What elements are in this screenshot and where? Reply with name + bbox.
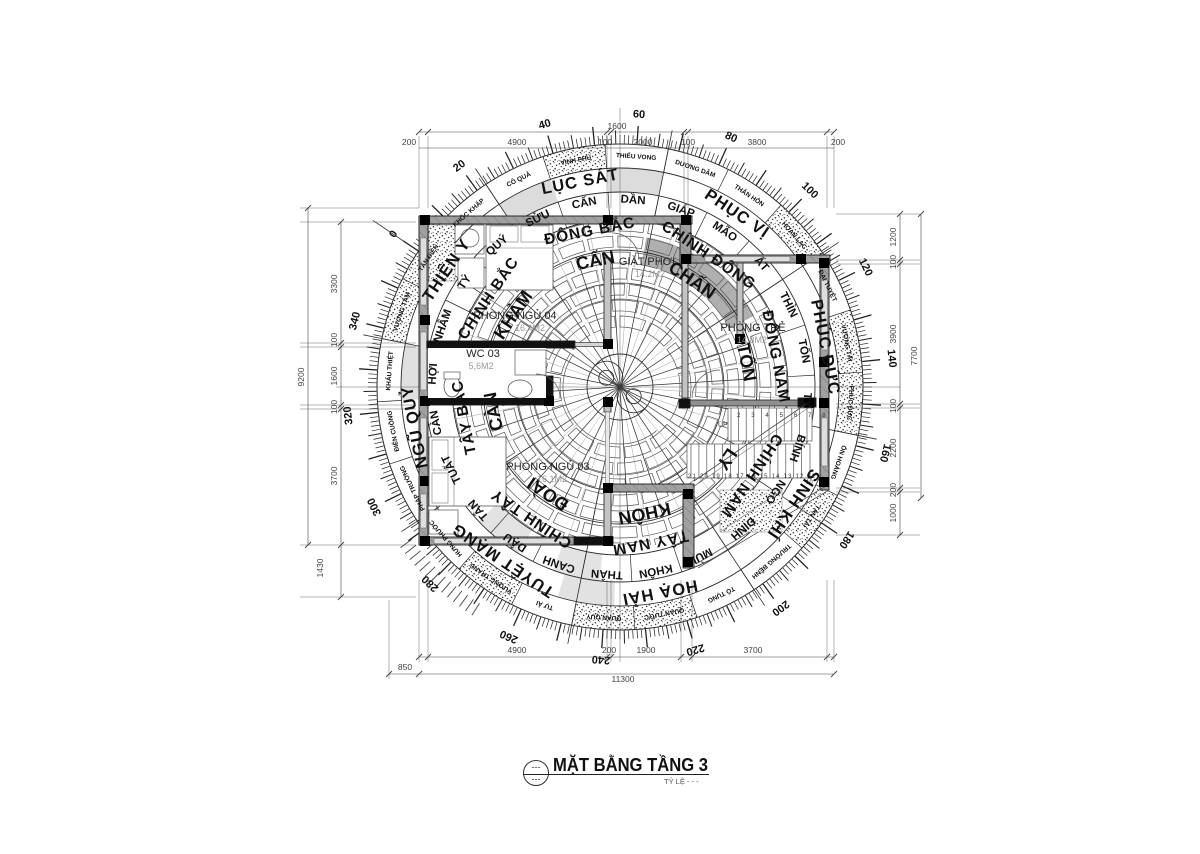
svg-text:2200: 2200	[888, 438, 898, 457]
svg-text:PHÒNG NGỦ 03: PHÒNG NGỦ 03	[506, 460, 589, 473]
svg-text:1600: 1600	[608, 121, 627, 131]
svg-text:3800: 3800	[748, 137, 767, 147]
svg-text:16.4M2: 16.4M2	[515, 323, 545, 333]
svg-text:3700: 3700	[744, 645, 763, 655]
svg-text:140: 140	[885, 349, 899, 369]
svg-text:GIẶT PHƠI: GIẶT PHƠI	[619, 255, 675, 268]
svg-text:11300: 11300	[611, 674, 634, 684]
svg-text:MẶT BẰNG TẦNG 3: MẶT BẰNG TẦNG 3	[553, 754, 708, 775]
svg-text:THÂN: THÂN	[591, 566, 624, 581]
svg-text:100: 100	[329, 400, 339, 414]
svg-text:TỴ: TỴ	[800, 392, 813, 408]
svg-text:3700: 3700	[329, 466, 339, 485]
svg-text:100: 100	[598, 137, 612, 147]
svg-text:3300: 3300	[329, 274, 339, 293]
svg-text:3900: 3900	[888, 324, 898, 343]
svg-text:1430: 1430	[315, 558, 325, 577]
svg-text:4900: 4900	[508, 645, 527, 655]
svg-text:100: 100	[681, 137, 695, 147]
svg-text:100: 100	[888, 255, 898, 269]
svg-text:TỶ LỆ - - -: TỶ LỆ - - -	[664, 777, 699, 786]
svg-text:2 3 4 5 6 7 8: 2 3 4 5 6 7 8	[737, 413, 830, 419]
svg-text:320: 320	[342, 406, 356, 426]
svg-text:5,6M2: 5,6M2	[468, 361, 493, 371]
svg-text:850: 850	[398, 662, 412, 672]
svg-text:1900: 1900	[637, 645, 656, 655]
svg-text:200: 200	[831, 137, 845, 147]
svg-text:---: ---	[532, 774, 541, 784]
svg-text:HỢI: HỢI	[427, 363, 440, 385]
svg-text:100: 100	[888, 399, 898, 413]
svg-text:1200: 1200	[888, 227, 898, 246]
svg-text:9200: 9200	[296, 367, 306, 386]
svg-text:200: 200	[402, 137, 416, 147]
svg-text:1000: 1000	[888, 503, 898, 522]
svg-text:---: ---	[532, 762, 541, 772]
svg-text:100: 100	[329, 333, 339, 347]
svg-text:7700: 7700	[909, 346, 919, 365]
svg-text:2000: 2000	[634, 137, 653, 147]
svg-text:1600: 1600	[329, 366, 339, 385]
svg-text:14.2M2: 14.2M2	[635, 269, 665, 279]
svg-text:UP: UP	[718, 422, 728, 429]
svg-text:60: 60	[632, 108, 645, 121]
svg-text:200: 200	[888, 483, 898, 497]
svg-text:WC 03: WC 03	[466, 348, 500, 360]
svg-text:DẦN: DẦN	[620, 193, 646, 208]
svg-text:200: 200	[602, 645, 616, 655]
svg-text:4900: 4900	[508, 137, 527, 147]
